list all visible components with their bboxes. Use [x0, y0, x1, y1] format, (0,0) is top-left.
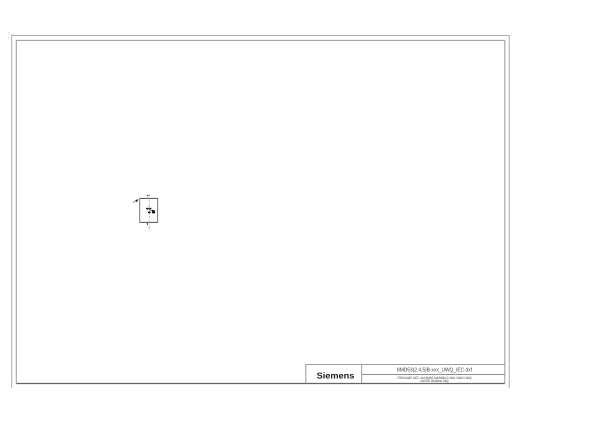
- svg-text:MASTER DRAWING UWQ: MASTER DRAWING UWQ: [421, 379, 449, 383]
- svg-text:Siemens: Siemens: [317, 370, 355, 380]
- svg-text:8MD53(2,4,5)B-xxx_UWQ_IEC.dxf: 8MD53(2,4,5)B-xxx_UWQ_IEC.dxf: [397, 367, 472, 374]
